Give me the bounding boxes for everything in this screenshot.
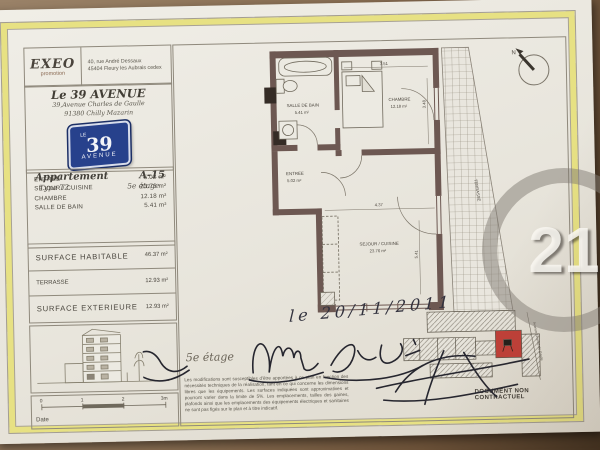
project-address-line2: 91380 Chilly Mazarin [26, 108, 172, 120]
brand-logo: EXEO promotion [24, 47, 82, 86]
room-area-sejour: 23.76 m² [370, 248, 387, 253]
dim-chambre-width: 3.51 [380, 61, 389, 66]
dim-chambre-height: 3.48 [421, 99, 426, 108]
surface-row: SURFACE HABITABLE 46.37 m² [28, 241, 175, 271]
room-area-chambre: 12.18 m² [391, 104, 408, 109]
room-area-entree: 5.02 m² [287, 178, 302, 183]
surface-row: TERRASSE 12.93 m² [29, 269, 175, 297]
scale-tick: 0 [40, 398, 43, 404]
brand-address-line2: 45404 Fleury les Aubrais cedex [88, 65, 162, 74]
surface-label: TERRASSE [36, 280, 68, 287]
room-label: ENTREE [34, 175, 60, 183]
project-address: 39,Avenue Charles de Gaulle 91380 Chilly… [25, 100, 171, 120]
room-area: 23.76 m² [140, 183, 166, 191]
surface-area: 12.93 m² [145, 278, 168, 284]
project-info-box: Le 39 AVENUE 39,Avenue Charles de Gaulle… [24, 83, 174, 174]
room-label-sejour: SEJOUR / CUISINE [359, 241, 398, 247]
watermark-number: 21 [528, 213, 599, 287]
scale-tick: 2 [122, 397, 125, 403]
room-area-bath: 5.41 m² [295, 110, 310, 115]
signature-martin [249, 343, 324, 383]
room-label: SALLE DE BAIN [35, 204, 83, 212]
scale-tick: 1 [81, 397, 84, 403]
brand-subtitle: promotion [25, 70, 81, 77]
signatures [142, 289, 545, 427]
room-label-entree: ENTREE [286, 171, 304, 176]
room-area: 5.02 m² [144, 173, 167, 180]
room-label: CHAMBRE [34, 195, 66, 203]
room-area: 12.18 m² [140, 192, 166, 200]
signature-second [324, 339, 424, 381]
room-area: 5.41 m² [144, 202, 167, 209]
brand-header-box: EXEO promotion 40, rue André Dessaux 454… [23, 45, 172, 88]
street-sign-logo: LE 39 AVENUE [68, 120, 131, 170]
brand-address: 40, rue André Dessaux 45404 Fleury les A… [82, 58, 162, 74]
signature-left [142, 351, 190, 382]
room-list-box: ENTREE 5.02 m² SEJOUR / CUISINE 23.76 m²… [26, 166, 176, 248]
room-label: SEJOUR / CUISINE [34, 184, 93, 192]
surface-label: SURFACE HABITABLE [36, 251, 129, 262]
dim-sejour-height: 5.41 [414, 250, 419, 259]
kitchen-counter [322, 216, 340, 300]
bathtub [279, 57, 332, 76]
dim-sejour-width: 4.37 [375, 202, 384, 207]
washing-machine [279, 121, 297, 139]
surface-label: SURFACE EXTERIEURE [37, 303, 138, 314]
toilet [283, 80, 297, 91]
surface-area: 46.37 m² [145, 252, 168, 258]
room-label-chambre: CHAMBRE [388, 97, 410, 102]
room-label-bath: SALLE DE BAIN [287, 102, 320, 108]
